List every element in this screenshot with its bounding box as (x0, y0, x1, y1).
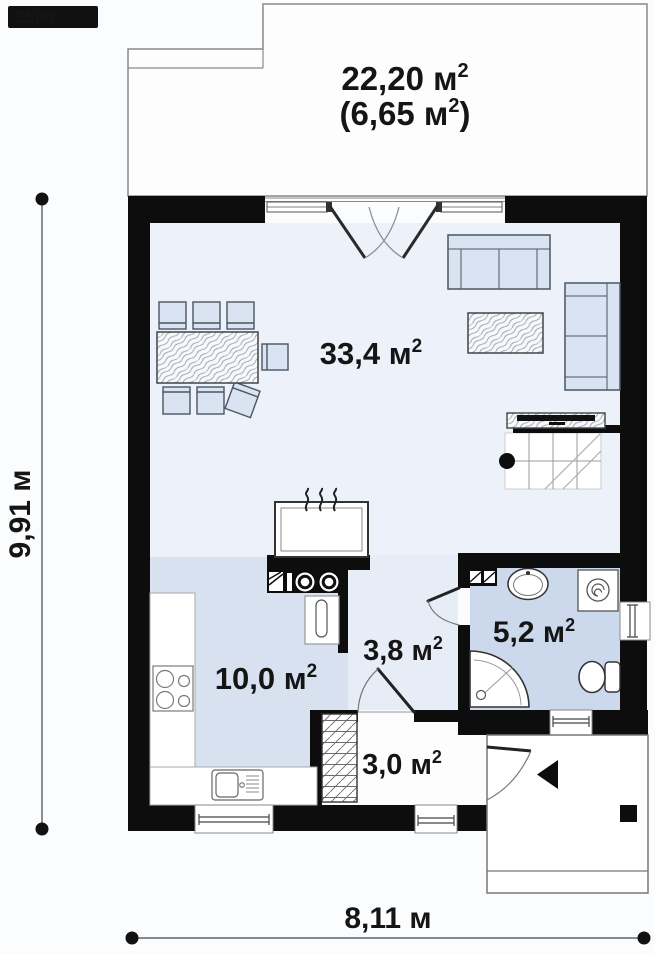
floor-plan-drawing: 9,91 м 8,11 м 22,20 м2 (6,65 м2) 33,4 м2… (0, 0, 655, 954)
terrace-area-label: 22,20 м2 (341, 60, 468, 97)
washing-machine (578, 570, 618, 611)
wall-entry-top-right (414, 710, 458, 722)
wall-left (128, 196, 150, 831)
entry-area-label: 3,0 м2 (362, 747, 442, 781)
bathroom-side-window (620, 602, 650, 640)
wall-bathroom-left-lower (458, 625, 470, 710)
entry-window (415, 805, 457, 833)
living-area-label: 33,4 м2 (320, 336, 422, 371)
logo: Z500© (8, 6, 98, 28)
kitchen-area-label: 10,0 м2 (215, 661, 317, 696)
tv-stand (507, 413, 605, 428)
sofa-large (448, 235, 550, 289)
dimension-left: 9,91 м (4, 193, 49, 836)
dining-table (157, 332, 258, 383)
wall-right (620, 196, 647, 735)
wall-bathroom-top (458, 553, 647, 568)
dining-chair (262, 344, 288, 370)
kitchen-window (195, 805, 273, 833)
sofa-small (565, 283, 620, 390)
staircase (499, 433, 601, 489)
dimension-bottom: 8,11 м (126, 902, 651, 945)
dining-chair (193, 302, 220, 329)
floor-plan-page: 9,91 м 8,11 м 22,20 м2 (6,65 м2) 33,4 м2… (0, 0, 655, 954)
porch (487, 735, 648, 893)
dimension-height-label: 9,91 м (4, 470, 37, 559)
wardrobe (322, 714, 357, 802)
dining-chair (227, 302, 254, 329)
bathroom-bottom-window (550, 710, 592, 735)
stair-post (499, 453, 515, 469)
shower-drain (477, 691, 486, 700)
porch-column (620, 805, 637, 822)
hallway-area-label: 3,8 м2 (363, 633, 443, 667)
dining-chair (159, 302, 186, 329)
dining-chair (163, 387, 190, 414)
washbasin (508, 569, 548, 600)
dining-chair (197, 387, 224, 414)
toilet (579, 662, 620, 693)
dimension-width-label: 8,11 м (344, 902, 431, 935)
bathroom-area-label: 5,2 м2 (493, 615, 575, 649)
kitchen-sink (212, 770, 263, 800)
coffee-table (468, 313, 543, 353)
cooktop (153, 666, 193, 711)
tv-icon (517, 415, 595, 421)
